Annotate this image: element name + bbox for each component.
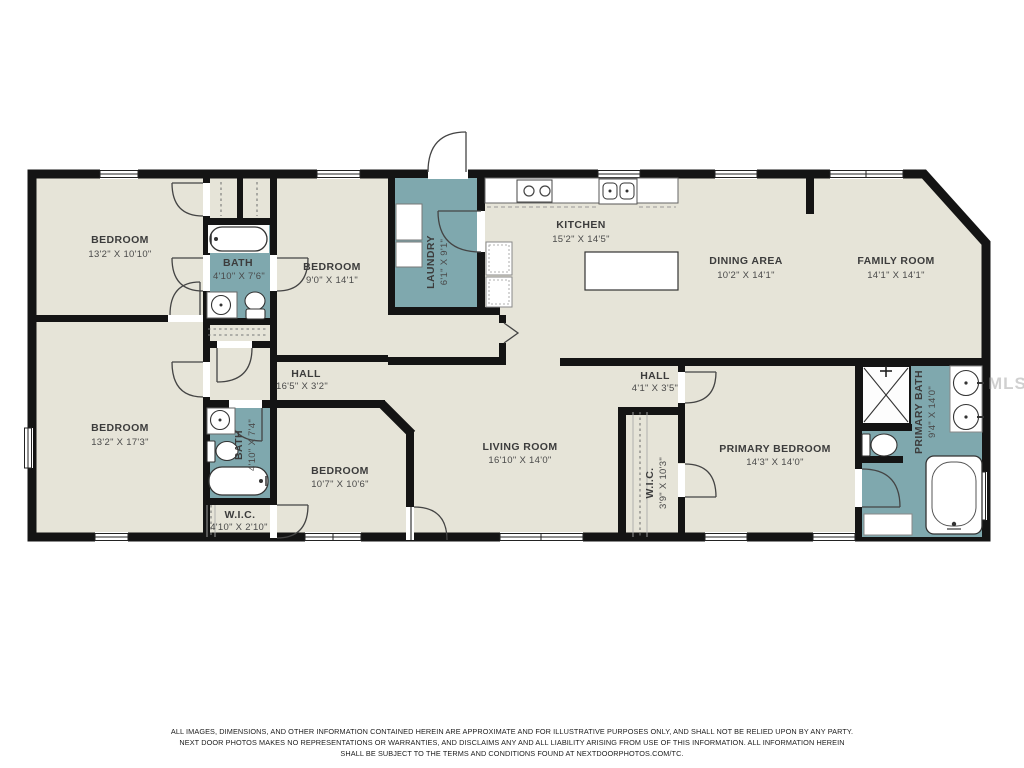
svg-text:9'4" X 14'0": 9'4" X 14'0" xyxy=(927,386,938,438)
window-bottom-1 xyxy=(95,532,128,542)
svg-text:14'1" X 14'1": 14'1" X 14'1" xyxy=(867,270,925,281)
washer-icon xyxy=(396,204,422,240)
svg-text:LIVING ROOM: LIVING ROOM xyxy=(483,441,558,453)
svg-text:3'9" X 10'3": 3'9" X 10'3" xyxy=(658,457,669,509)
disclaimer-line-2: NEXT DOOR PHOTOS MAKES NO REPRESENTATION… xyxy=(0,738,1024,749)
svg-text:4'1" X 3'5": 4'1" X 3'5" xyxy=(632,383,678,394)
svg-text:PRIMARY BATH: PRIMARY BATH xyxy=(913,370,925,454)
window-bottom-6 xyxy=(813,532,855,542)
svg-text:W.I.C.: W.I.C. xyxy=(644,468,656,499)
disclaimer-line-3: SHALL BE SUBJECT TO THE TERMS AND CONDIT… xyxy=(0,749,1024,760)
svg-text:9'0" X 14'1": 9'0" X 14'1" xyxy=(306,275,358,286)
pantry-cabinets xyxy=(486,242,512,307)
floorplan-canvas: BEDROOM13'2" X 10'10" BATH4'10" X 7'6" B… xyxy=(0,0,1024,768)
svg-text:6'1" X 9'1": 6'1" X 9'1" xyxy=(439,239,450,285)
soaking-tub-icon xyxy=(926,456,982,534)
svg-text:DINING AREA: DINING AREA xyxy=(709,255,782,267)
shower-icon xyxy=(862,366,910,424)
bath-cabinet xyxy=(864,514,912,535)
disclaimer-line-1: ALL IMAGES, DIMENSIONS, AND OTHER INFORM… xyxy=(0,727,1024,738)
window-bottom-4 xyxy=(541,532,583,542)
svg-text:16'10" X 14'0": 16'10" X 14'0" xyxy=(488,455,551,466)
toilet-icon xyxy=(245,292,265,319)
kitchen-sink-icon xyxy=(599,179,637,204)
window-bottom-3 xyxy=(500,532,541,542)
window-bottom-2 xyxy=(305,532,361,542)
svg-text:BATH: BATH xyxy=(233,430,245,460)
svg-text:13'2" X 10'10": 13'2" X 10'10" xyxy=(88,249,151,260)
disclaimer-text: ALL IMAGES, DIMENSIONS, AND OTHER INFORM… xyxy=(0,727,1024,760)
window-top-4 xyxy=(715,169,757,179)
window-top-5 xyxy=(830,169,903,179)
svg-text:4'10" X 2'10": 4'10" X 2'10" xyxy=(210,522,268,533)
svg-text:13'2" X 17'3": 13'2" X 17'3" xyxy=(91,437,149,448)
page: { "colors": { "floor": "#e6e4d8", "wet_r… xyxy=(0,0,1024,768)
svg-text:BEDROOM: BEDROOM xyxy=(311,465,369,477)
window-top-1 xyxy=(100,169,138,179)
svg-text:LAUNDRY: LAUNDRY xyxy=(425,235,437,289)
laundry-fixtures xyxy=(396,204,422,267)
svg-text:4'10" X 7'6": 4'10" X 7'6" xyxy=(213,271,265,282)
svg-text:16'5" X 3'2": 16'5" X 3'2" xyxy=(276,381,328,392)
dryer-icon xyxy=(396,242,422,267)
svg-text:BEDROOM: BEDROOM xyxy=(91,234,149,246)
kitchen-counter xyxy=(485,178,678,203)
svg-text:KITCHEN: KITCHEN xyxy=(556,219,605,231)
door-arc-laundry-exterior xyxy=(428,132,466,172)
mls-watermark: MLS xyxy=(988,374,1024,394)
svg-text:BEDROOM: BEDROOM xyxy=(91,422,149,434)
bathtub-icon xyxy=(210,227,267,251)
window-bottom-5 xyxy=(705,532,747,542)
svg-text:10'2" X 14'1": 10'2" X 14'1" xyxy=(717,270,775,281)
svg-text:W.I.C.: W.I.C. xyxy=(225,509,256,521)
svg-text:FAMILY ROOM: FAMILY ROOM xyxy=(857,255,934,267)
svg-text:HALL: HALL xyxy=(640,370,670,382)
floor-slab xyxy=(32,174,986,537)
svg-text:PRIMARY BEDROOM: PRIMARY BEDROOM xyxy=(719,443,831,455)
window-left xyxy=(23,428,33,468)
double-vanity xyxy=(950,366,984,432)
svg-text:BATH: BATH xyxy=(223,257,253,269)
window-top-2 xyxy=(317,169,360,179)
floorplan-drawing: BEDROOM13'2" X 10'10" BATH4'10" X 7'6" B… xyxy=(0,0,1024,768)
svg-text:15'2" X 14'5": 15'2" X 14'5" xyxy=(552,234,610,245)
svg-text:HALL: HALL xyxy=(291,368,321,380)
svg-text:BEDROOM: BEDROOM xyxy=(303,261,361,273)
kitchen-island xyxy=(585,252,678,290)
svg-text:14'3" X 14'0": 14'3" X 14'0" xyxy=(746,457,804,468)
svg-text:4'10" X 7'4": 4'10" X 7'4" xyxy=(247,419,258,471)
toilet-icon xyxy=(862,434,897,456)
svg-text:10'7" X 10'6": 10'7" X 10'6" xyxy=(311,479,369,490)
